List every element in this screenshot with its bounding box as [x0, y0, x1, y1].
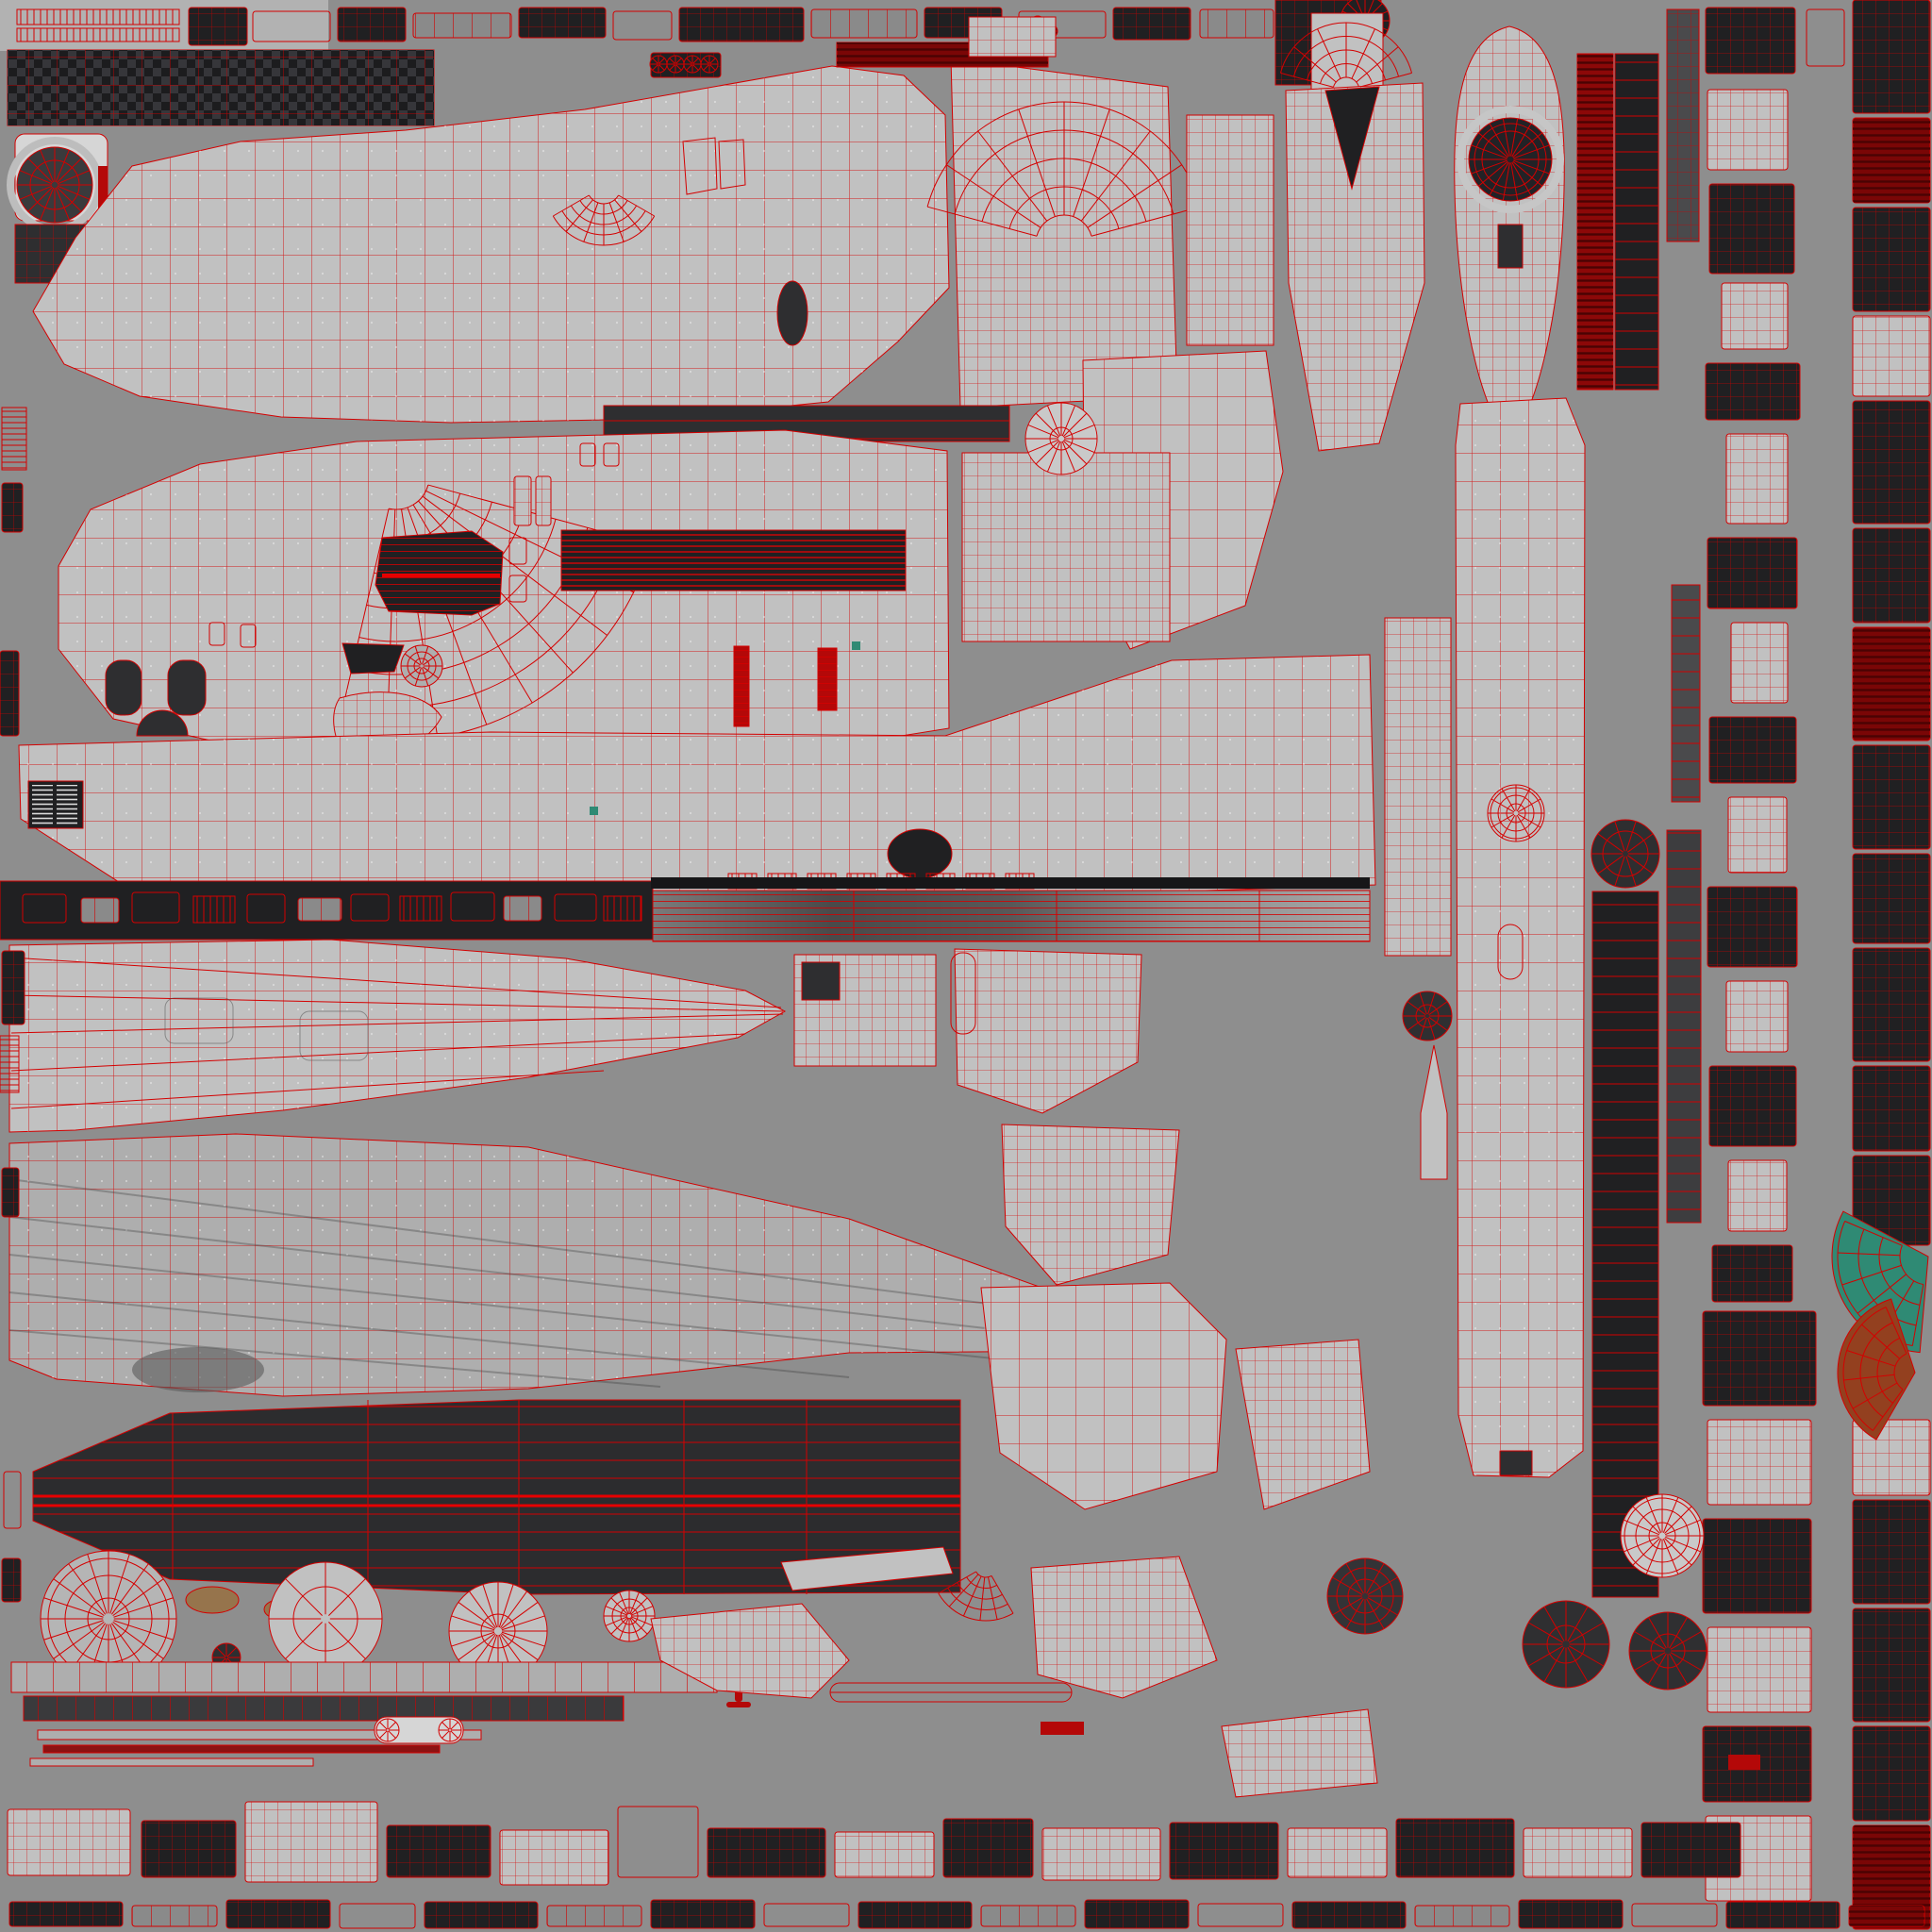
right-parts-column-light	[1722, 283, 1788, 349]
red-segment-column	[1667, 830, 1701, 1223]
engine-intake-fan	[1460, 109, 1560, 209]
small-starburst-disks-disk	[667, 56, 684, 73]
top-edge-modules-dark	[338, 8, 406, 42]
vent-pair-light	[536, 476, 551, 525]
long-red-striped-band	[561, 530, 906, 591]
bowtie-part	[342, 643, 404, 674]
boom-foot	[1500, 1451, 1532, 1475]
thin-strip-c	[30, 1758, 313, 1766]
tail-boom-panel	[1456, 398, 1585, 1477]
bottom-edge-modules-dark	[425, 1902, 538, 1928]
upper-grid-block	[969, 17, 1056, 57]
bottom-edge-modules-vseg	[547, 1906, 641, 1926]
left-edge-bits-dark	[2, 483, 23, 532]
bottom-scatter-dark	[1170, 1823, 1278, 1879]
bottom-scatter-light	[1524, 1828, 1632, 1877]
red-hatch-small-a	[1041, 1722, 1084, 1735]
right-edge-stack-dark	[1853, 1608, 1930, 1722]
bottom-scatter-light	[245, 1802, 377, 1882]
wheel-web-light	[1621, 1494, 1704, 1577]
bottom-edge-modules-dark	[858, 1902, 972, 1928]
right-edge-stack-dark	[1853, 0, 1930, 113]
intake-detail-cluster	[1498, 225, 1523, 268]
right-edge-stack-dark	[1853, 208, 1930, 311]
right-edge-stack-dark	[1853, 1500, 1930, 1604]
bottom-edge-modules-vseg	[1415, 1906, 1509, 1926]
cockpit-lower-panel	[962, 453, 1170, 641]
mid-part-notch	[802, 962, 840, 1000]
side-strip-panel	[1187, 115, 1274, 345]
right-parts-column-dark	[1706, 8, 1795, 74]
grid-strip-panel	[1385, 618, 1451, 956]
right-parts-column-light	[1728, 1160, 1787, 1231]
right-edge-stack-dark	[1853, 854, 1930, 943]
right-edge-stack-dred	[1853, 627, 1930, 741]
dark-column	[1615, 54, 1658, 390]
bottom-edge-modules-dark	[1292, 1902, 1406, 1928]
right-parts-column-dark	[1712, 1245, 1792, 1302]
bottom-edge-modules-dark	[1519, 1900, 1623, 1928]
bottom-scatter-dark	[708, 1828, 825, 1877]
bottom-edge-modules-vseg	[132, 1906, 217, 1926]
right-edge-stack-dark	[1853, 1066, 1930, 1151]
right-parts-column-light	[1731, 623, 1788, 703]
right-parts-column-dark	[1706, 363, 1800, 420]
blade-top-strip	[651, 877, 1370, 889]
small-starburst-disks-disk	[701, 56, 718, 73]
right-parts-column-light	[1726, 434, 1788, 524]
red-striped-column	[1577, 54, 1613, 390]
i-beam-part-redfill	[726, 1702, 751, 1707]
belly-smudge	[132, 1347, 264, 1392]
bottom-scatter-light	[1042, 1828, 1160, 1880]
segmented-strip-light	[11, 1662, 717, 1692]
module-band-bits-vseg	[298, 898, 341, 921]
right-parts-column-light	[1707, 90, 1788, 170]
bottom-edge-modules-dred	[1849, 1906, 1924, 1926]
rotor-blade-gradient	[653, 891, 1370, 941]
hatched-dark-block	[375, 531, 503, 615]
right-parts-column-dark	[1707, 538, 1797, 608]
ring-disk	[1327, 1558, 1403, 1634]
bottom-scatter-light	[8, 1809, 130, 1875]
bottom-scatter-dark	[142, 1821, 236, 1877]
bottom-edge-modules-vseg	[981, 1906, 1075, 1926]
dark-vertical-band	[1592, 891, 1658, 1597]
bottom-edge-modules-dark	[226, 1900, 330, 1928]
top-edge-modules-dark	[519, 8, 606, 38]
bottom-scatter-dark	[1396, 1819, 1514, 1877]
checker-band	[8, 50, 434, 125]
uv-island-layer	[0, 0, 1932, 1932]
tire-dark-a	[1523, 1601, 1609, 1688]
right-edge-stack-dark	[1853, 1726, 1930, 1821]
right-edge-stack-dark	[1853, 948, 1930, 1061]
module-band-bits-vseg	[81, 898, 119, 923]
band-donut	[1591, 820, 1659, 888]
bottom-scatter-dark	[387, 1825, 491, 1877]
left-edge-bits-dark	[0, 651, 19, 736]
right-edge-stack-dark	[1853, 528, 1930, 623]
engine-pod-b	[168, 660, 206, 715]
bottom-scatter-dark	[1641, 1823, 1740, 1877]
teal-dot-a	[852, 641, 860, 650]
bottom-scatter-light	[500, 1830, 608, 1885]
bottom-edge-modules-dark	[1085, 1900, 1189, 1928]
dark-blob-disc	[888, 829, 952, 878]
right-parts-column-dark	[1703, 1519, 1811, 1613]
thin-strip-b	[43, 1745, 440, 1753]
red-hatch-bar-a	[818, 648, 837, 710]
bottom-scatter-light	[1288, 1828, 1387, 1877]
rotor-disk-octagon	[269, 1562, 382, 1675]
bottom-edge-modules-dark	[651, 1900, 755, 1928]
red-segment-column-b	[1672, 585, 1700, 802]
texture-atlas-viewport	[0, 0, 1932, 1932]
module-band-bits-vseg	[504, 896, 541, 921]
right-parts-column-dark	[1703, 1311, 1816, 1406]
right-parts-column-dark	[1709, 717, 1796, 783]
top-edge-modules-dark	[189, 8, 247, 45]
bottom-edge-modules-dark	[1726, 1902, 1840, 1928]
right-edge-stack-dred	[1853, 118, 1930, 203]
grid-column	[1667, 9, 1699, 241]
small-starburst-disks-disk	[650, 56, 667, 73]
top-edge-modules-vseg	[811, 9, 917, 38]
vent-grille-slats-b	[57, 785, 77, 824]
vent-grille-slats-a	[32, 785, 53, 824]
bottom-scatter-light	[835, 1832, 934, 1877]
red-hatch-bar-b	[734, 646, 749, 726]
right-parts-column-dark	[1707, 887, 1797, 967]
spider-web-disk	[401, 645, 442, 687]
top-edge-modules-dark	[1113, 8, 1191, 40]
bottom-scatter-dark	[943, 1819, 1033, 1877]
tire-dark-b	[1629, 1612, 1707, 1690]
top-edge-modules-dark	[679, 8, 804, 42]
left-edge-bits-dark	[2, 1558, 21, 1602]
wheel-hub-mid	[1025, 403, 1097, 475]
red-hatch-small-b	[1728, 1755, 1760, 1770]
right-edge-stack-dark	[1853, 745, 1930, 849]
vent-pair-light	[514, 476, 531, 525]
top-edge-modules-vseg	[1200, 9, 1274, 38]
small-starburst-disks-disk	[684, 56, 701, 73]
right-parts-column-light	[1726, 981, 1788, 1052]
right-parts-column-light	[1707, 1627, 1811, 1712]
uv-atlas-canvas	[0, 0, 1932, 1932]
left-edge-bits-dark	[2, 951, 25, 1024]
tan-patch-a	[186, 1587, 239, 1613]
right-parts-column-light	[1707, 1420, 1811, 1505]
panel-dark-oval	[777, 281, 808, 345]
tail-rotor-disk	[10, 141, 99, 229]
top-left-light-zone	[0, 0, 328, 51]
bottom-edge-modules-dark	[9, 1902, 123, 1926]
left-edge-bits-dark	[2, 1168, 19, 1217]
right-parts-column-light	[1728, 797, 1787, 873]
wheel-small	[1403, 991, 1452, 1041]
right-parts-column-dark	[1709, 1066, 1796, 1146]
segmented-strip-dark	[24, 1696, 624, 1721]
teal-dot-b	[590, 807, 598, 815]
rotor-disk-small	[604, 1591, 655, 1641]
right-parts-column-dark	[1709, 184, 1794, 274]
engine-pod-a	[106, 660, 142, 715]
right-edge-stack-dark	[1853, 401, 1930, 524]
right-edge-stack	[1853, 0, 1930, 1929]
top-edge-modules-vseg	[413, 13, 511, 38]
right-edge-stack-light	[1853, 316, 1930, 396]
